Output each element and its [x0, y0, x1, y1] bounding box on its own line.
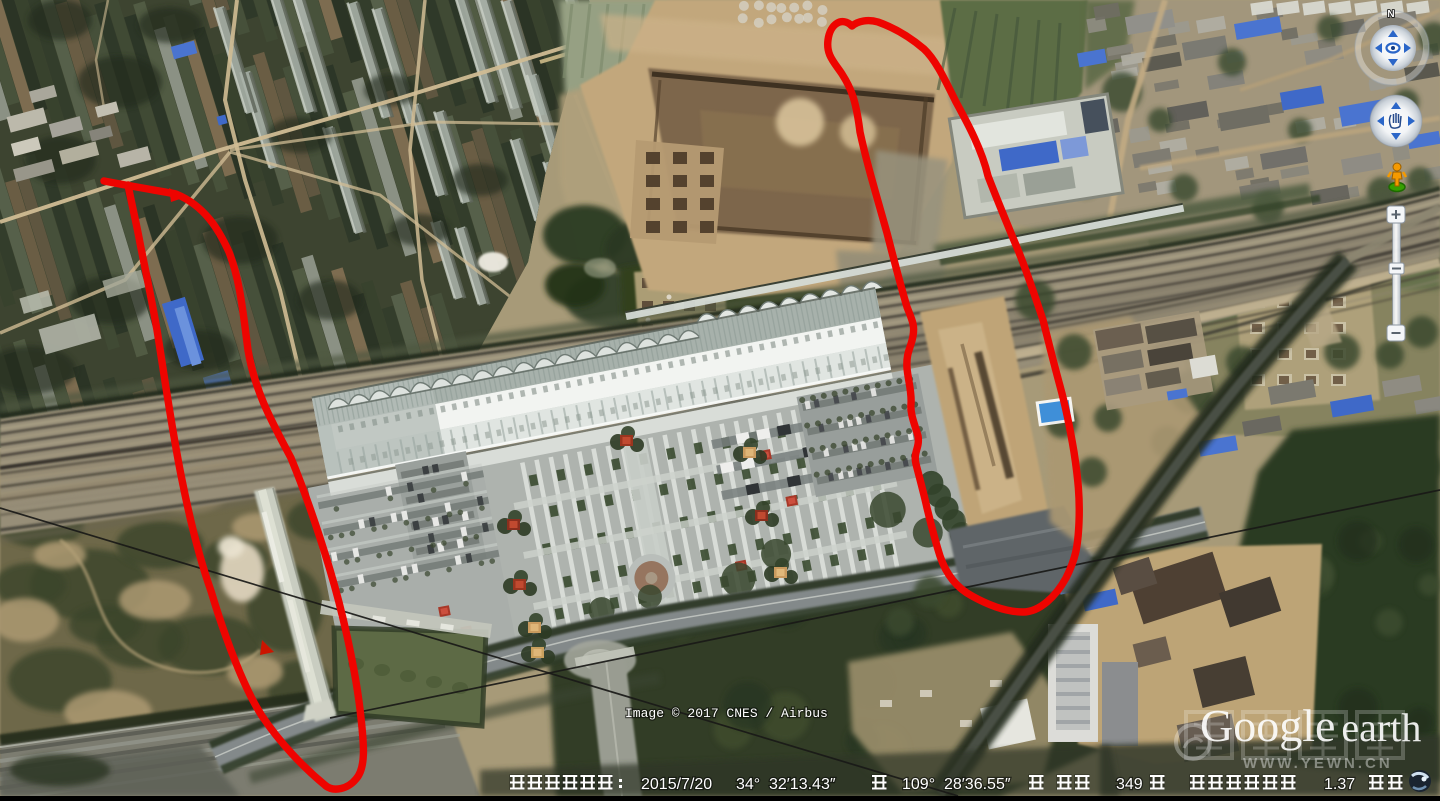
svg-text:1.37: 1.37	[1324, 776, 1355, 793]
svg-text:Image © 2017 CNES / Airbus: Image © 2017 CNES / Airbus	[625, 706, 828, 721]
svg-text:28′36.55″: 28′36.55″	[944, 776, 1011, 793]
svg-text:WWW.YEWN.CN: WWW.YEWN.CN	[1243, 755, 1393, 772]
svg-text:N: N	[1387, 9, 1394, 20]
svg-text:349: 349	[1116, 776, 1143, 793]
svg-text:109°: 109°	[902, 776, 935, 793]
svg-text:2015/7/20: 2015/7/20	[641, 776, 712, 793]
svg-text:34°: 34°	[736, 776, 760, 793]
svg-text:32′13.43″: 32′13.43″	[769, 776, 836, 793]
